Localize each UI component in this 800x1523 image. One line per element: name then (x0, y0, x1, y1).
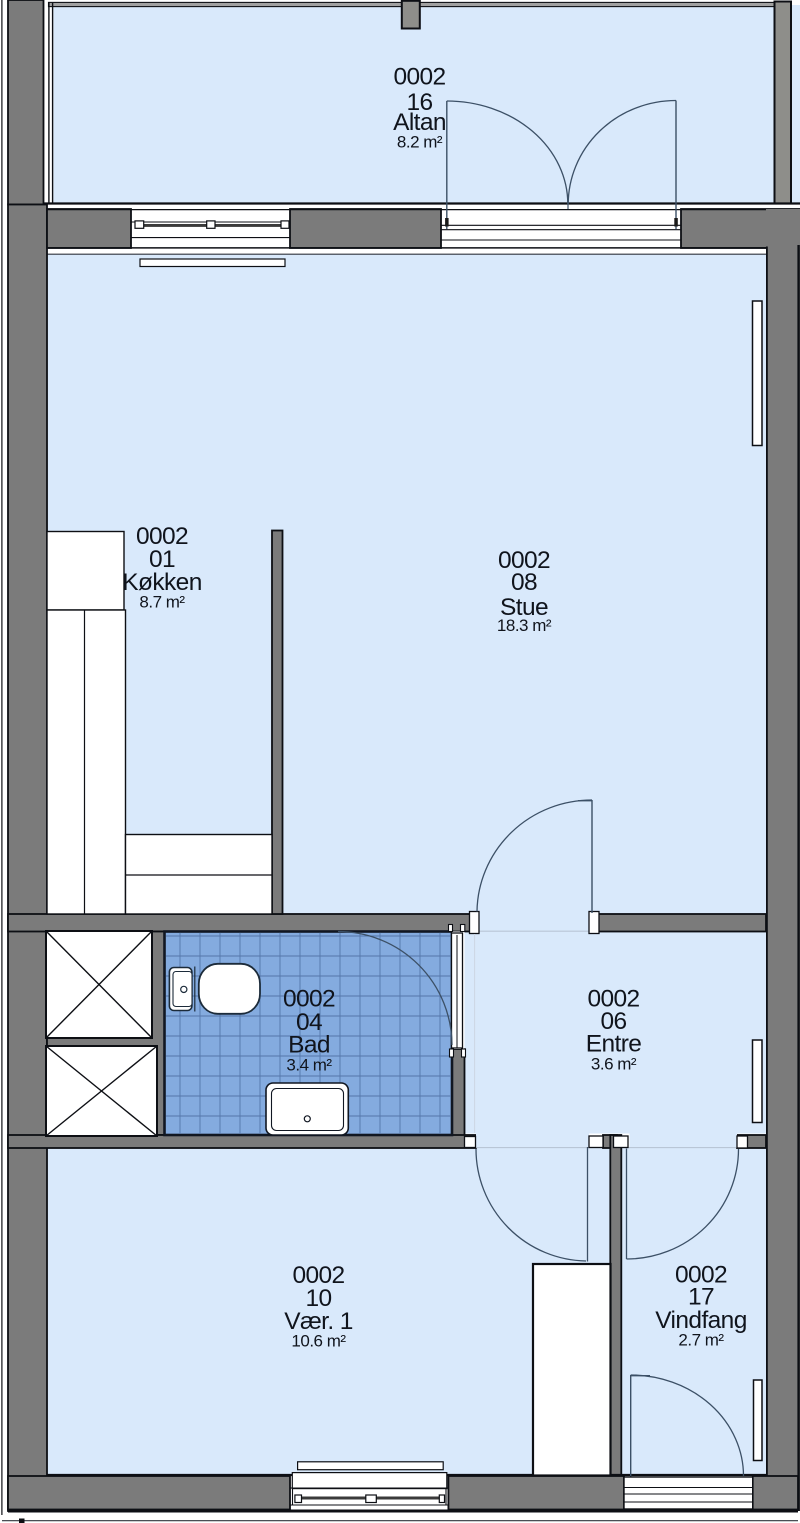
svg-text:18.3 m²: 18.3 m² (497, 616, 552, 635)
svg-text:08: 08 (511, 569, 537, 596)
svg-text:2.7 m²: 2.7 m² (678, 1331, 724, 1350)
svg-text:Entre: Entre (586, 1031, 642, 1058)
svg-text:3.6 m²: 3.6 m² (591, 1055, 637, 1074)
svg-text:8.7 m²: 8.7 m² (139, 592, 185, 611)
svg-text:10.6 m²: 10.6 m² (291, 1332, 346, 1351)
svg-text:Bad: Bad (288, 1032, 330, 1059)
svg-text:0002: 0002 (393, 64, 445, 91)
svg-text:3.4 m²: 3.4 m² (286, 1056, 332, 1075)
svg-text:8.2 m²: 8.2 m² (397, 133, 443, 152)
